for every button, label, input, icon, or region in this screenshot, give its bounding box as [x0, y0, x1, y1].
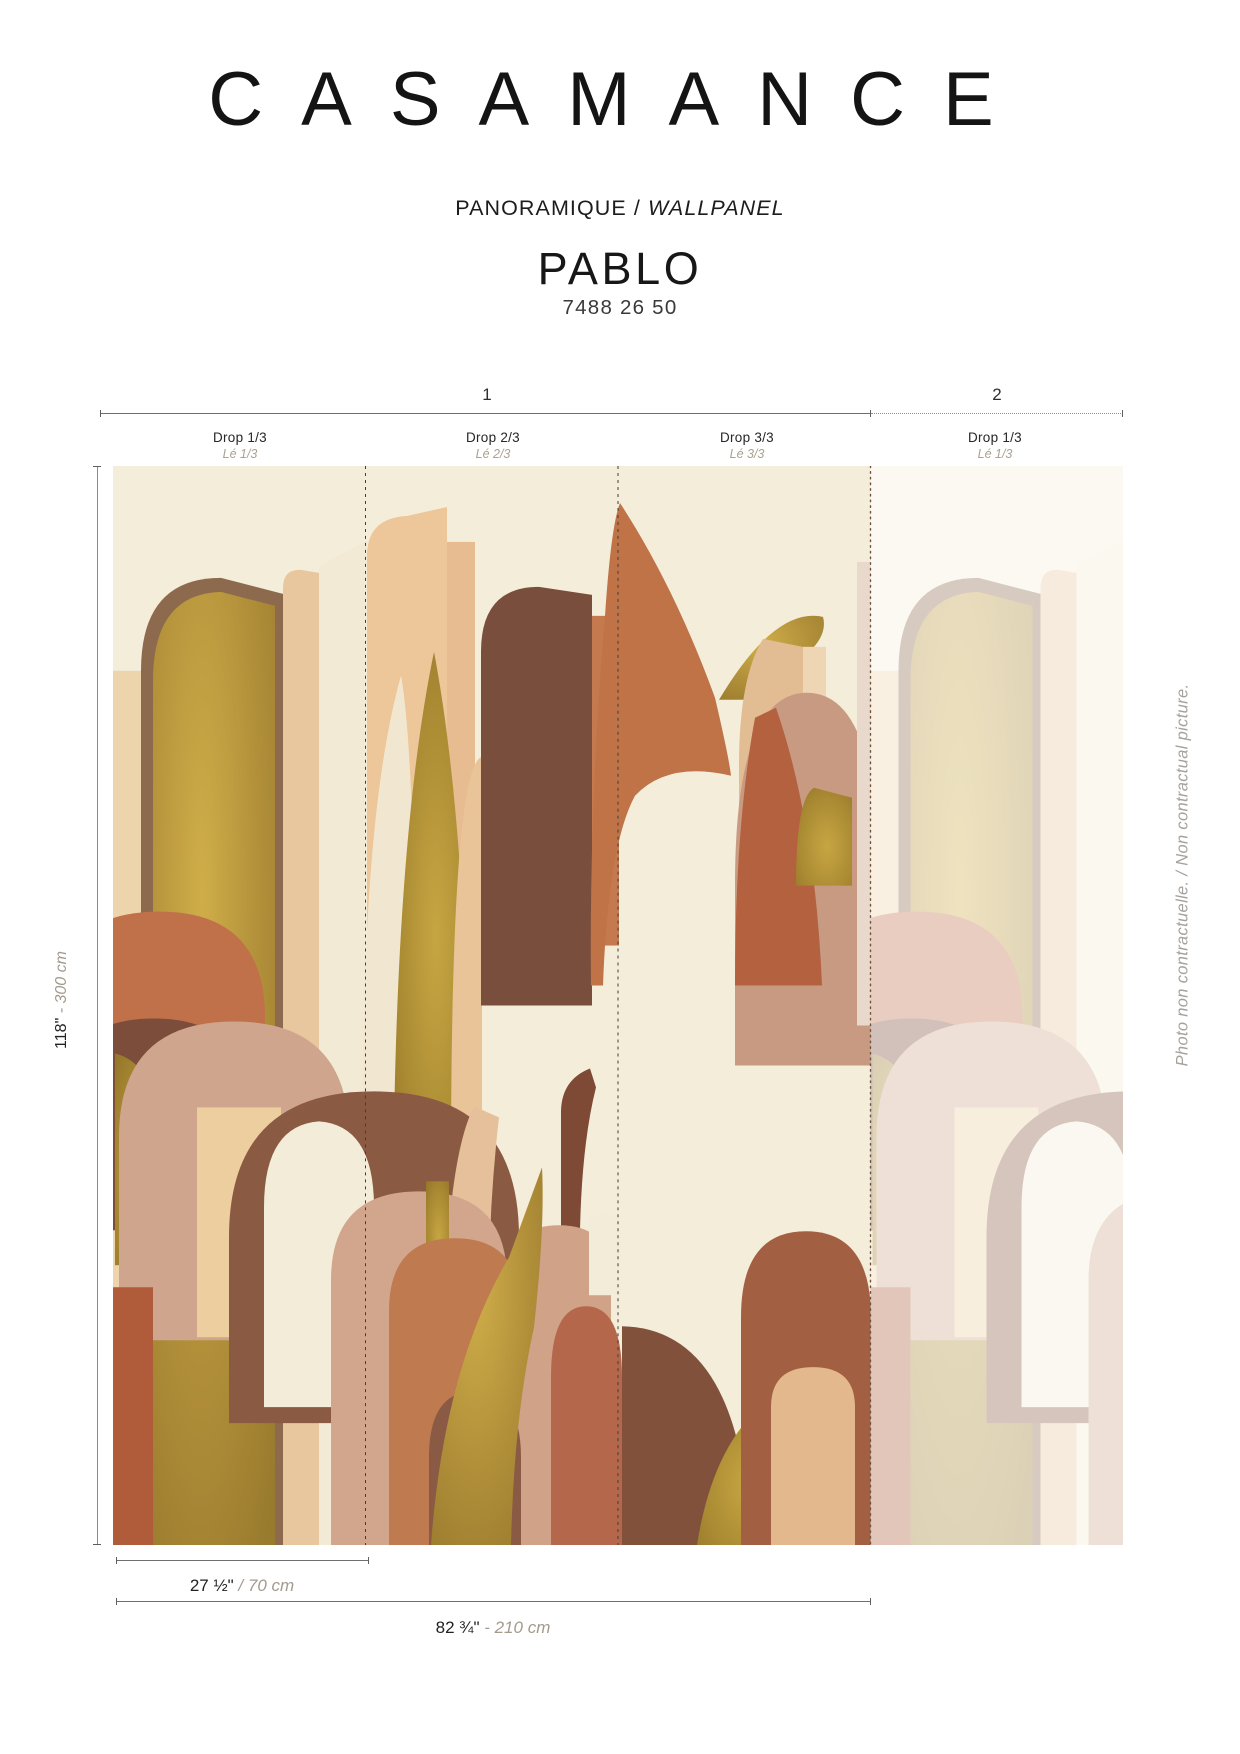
panel-width-dim-line [116, 1601, 870, 1602]
brand-logo: CASAMANCE [208, 56, 1031, 143]
panel-2-number: 2 [992, 385, 1001, 405]
drop-label-en: Drop 3/3 [720, 430, 774, 446]
height-dim-line [97, 466, 98, 1545]
category-en: WALLPANEL [648, 196, 785, 220]
drop-width-tick [368, 1557, 369, 1564]
drop-label-2: Drop 2/3 Lé 2/3 [466, 430, 520, 461]
panel-1-number: 1 [482, 385, 491, 405]
scale-tick [1122, 410, 1123, 417]
drop-label-fr: Lé 1/3 [213, 447, 267, 461]
wallpaper-artwork [113, 466, 1123, 1545]
scale-tick [100, 410, 101, 417]
drop-label-1: Drop 1/3 Lé 1/3 [213, 430, 267, 461]
panel-width-tick [116, 1598, 117, 1605]
drop-label-4: Drop 1/3 Lé 1/3 [968, 430, 1022, 461]
drop-label-fr: Lé 2/3 [466, 447, 520, 461]
non-contractual-note: Photo non contractuelle. / Non contractu… [1174, 684, 1193, 1067]
height-dim-tick [93, 466, 101, 467]
drop-width-dim-line [116, 1560, 368, 1561]
scale-tick [870, 410, 871, 417]
panel-width-tick [870, 1598, 871, 1605]
height-dim-tick [93, 1544, 101, 1545]
drop-label-fr: Lé 1/3 [968, 447, 1022, 461]
drop-label-en: Drop 2/3 [466, 430, 520, 446]
drop-width-label: 27 ½" / 70 cm [190, 1576, 294, 1596]
panel-1-extent-line [100, 413, 871, 414]
drop-width-tick [116, 1557, 117, 1564]
drop-label-en: Drop 1/3 [968, 430, 1022, 446]
panel-width-metric: - 210 cm [480, 1618, 551, 1637]
drop-label-3: Drop 3/3 Lé 3/3 [720, 430, 774, 461]
drop-label-en: Drop 1/3 [213, 430, 267, 446]
drop-width-metric: / 70 cm [234, 1576, 294, 1595]
product-name: PABLO [538, 243, 703, 295]
product-reference: 7488 26 50 [563, 296, 678, 320]
category-fr: PANORAMIQUE / [455, 196, 648, 220]
panel-width-label: 82 ¾" - 210 cm [436, 1618, 551, 1638]
drop-label-fr: Lé 3/3 [720, 447, 774, 461]
category-line: PANORAMIQUE / WALLPANEL [455, 196, 784, 221]
wallpaper-preview [113, 466, 1123, 1545]
panel-width-imperial: 82 ¾" [436, 1618, 480, 1637]
product-sheet: CASAMANCE PANORAMIQUE / WALLPANEL PABLO … [0, 0, 1240, 1754]
height-metric: - 300 cm [53, 951, 70, 1018]
panel-2-extent-line [871, 413, 1123, 414]
height-imperial: 118" [53, 1018, 70, 1049]
drop-width-imperial: 27 ½" [190, 1576, 234, 1595]
height-dim-label: 118" - 300 cm [53, 951, 71, 1049]
